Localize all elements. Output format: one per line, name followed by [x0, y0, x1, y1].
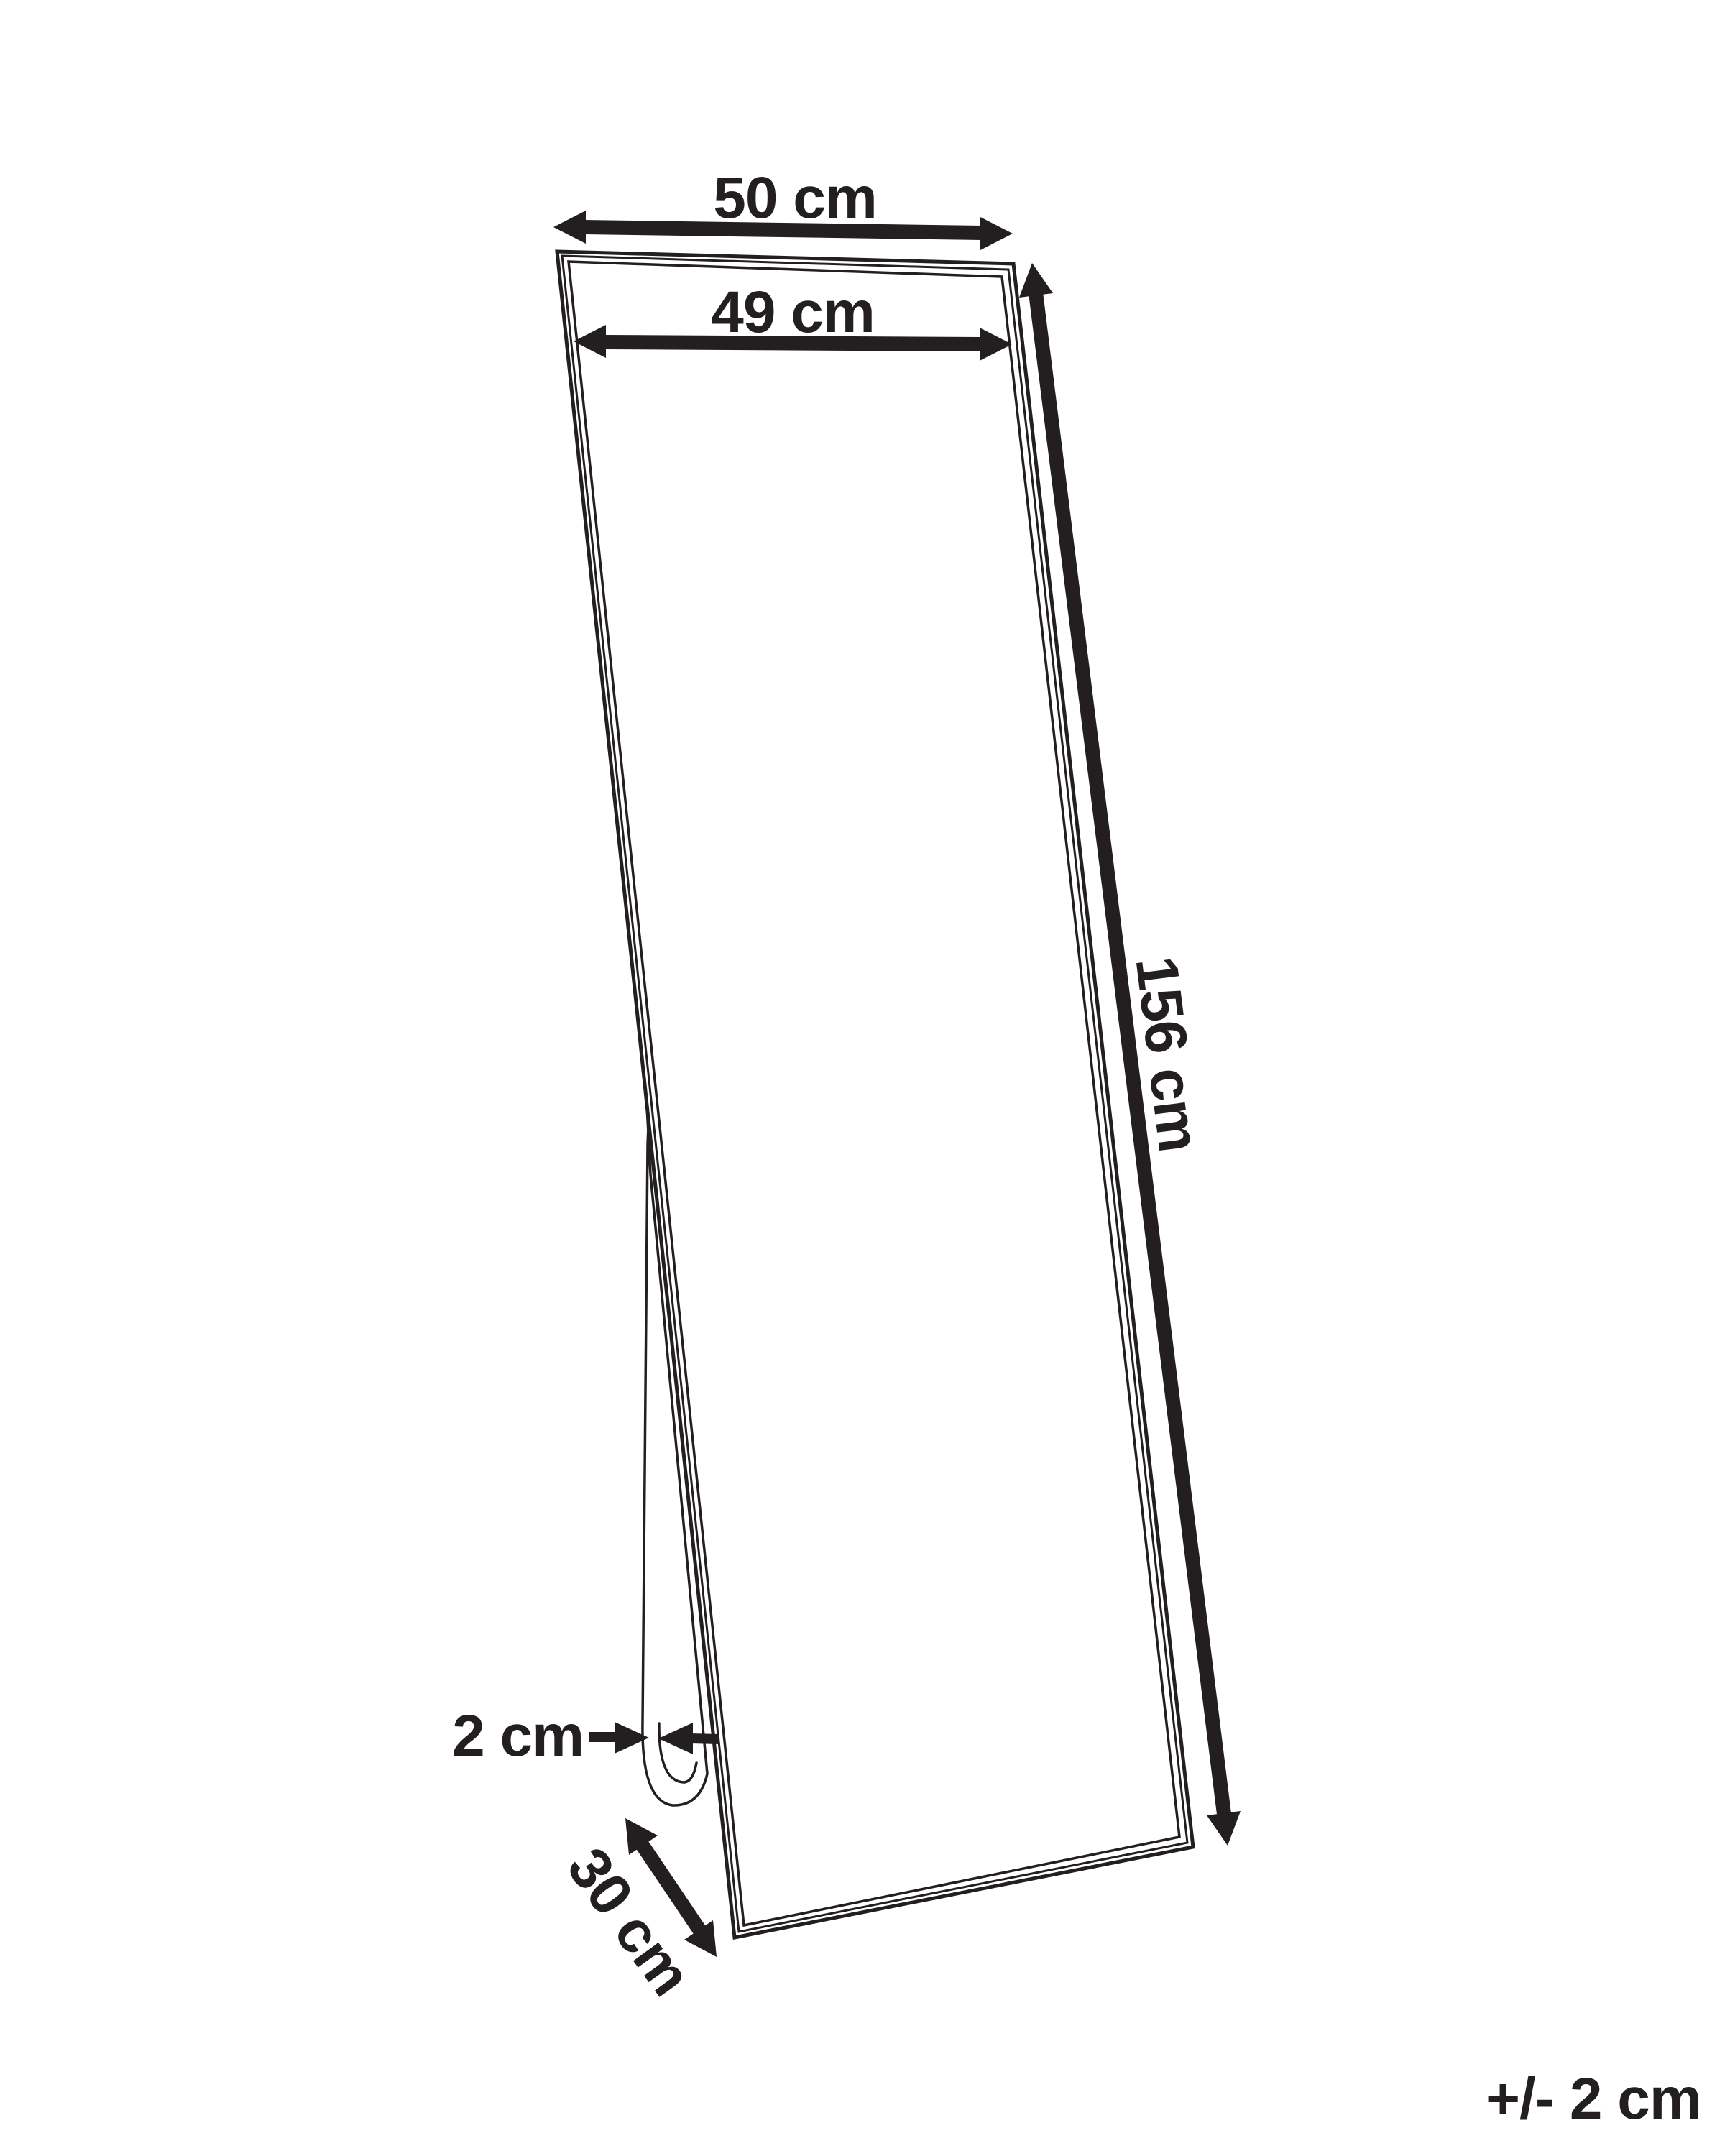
tolerance-note: +/- 2 cm — [1486, 2066, 1701, 2132]
arrowhead-right-icon — [980, 217, 1013, 250]
arrowhead-down-icon — [1207, 1811, 1241, 1846]
arrowhead-left-icon — [553, 211, 586, 244]
arrowhead-left-icon — [658, 1723, 693, 1754]
stand-depth-label: 30 cm — [555, 1836, 704, 2007]
dim-overall-width: 50 cm — [553, 165, 1013, 250]
overall-width-label: 50 cm — [713, 165, 877, 231]
stand-thickness-label: 2 cm — [452, 1703, 584, 1769]
diagram-svg: 50 cm 49 cm 156 cm 2 cm — [0, 0, 1725, 2156]
dim-stand-thickness-line-right — [690, 1738, 719, 1739]
dimension-diagram: 50 cm 49 cm 156 cm 2 cm — [0, 0, 1725, 2156]
mirror-width-label: 49 cm — [711, 280, 875, 345]
arrowhead-up-icon — [1019, 263, 1053, 298]
mirror-frame — [557, 252, 1193, 1938]
dim-stand-depth: 30 cm — [555, 1818, 717, 2007]
dim-stand-thickness: 2 cm — [452, 1703, 719, 1769]
mirror-frame-outer-edge — [557, 252, 1193, 1938]
